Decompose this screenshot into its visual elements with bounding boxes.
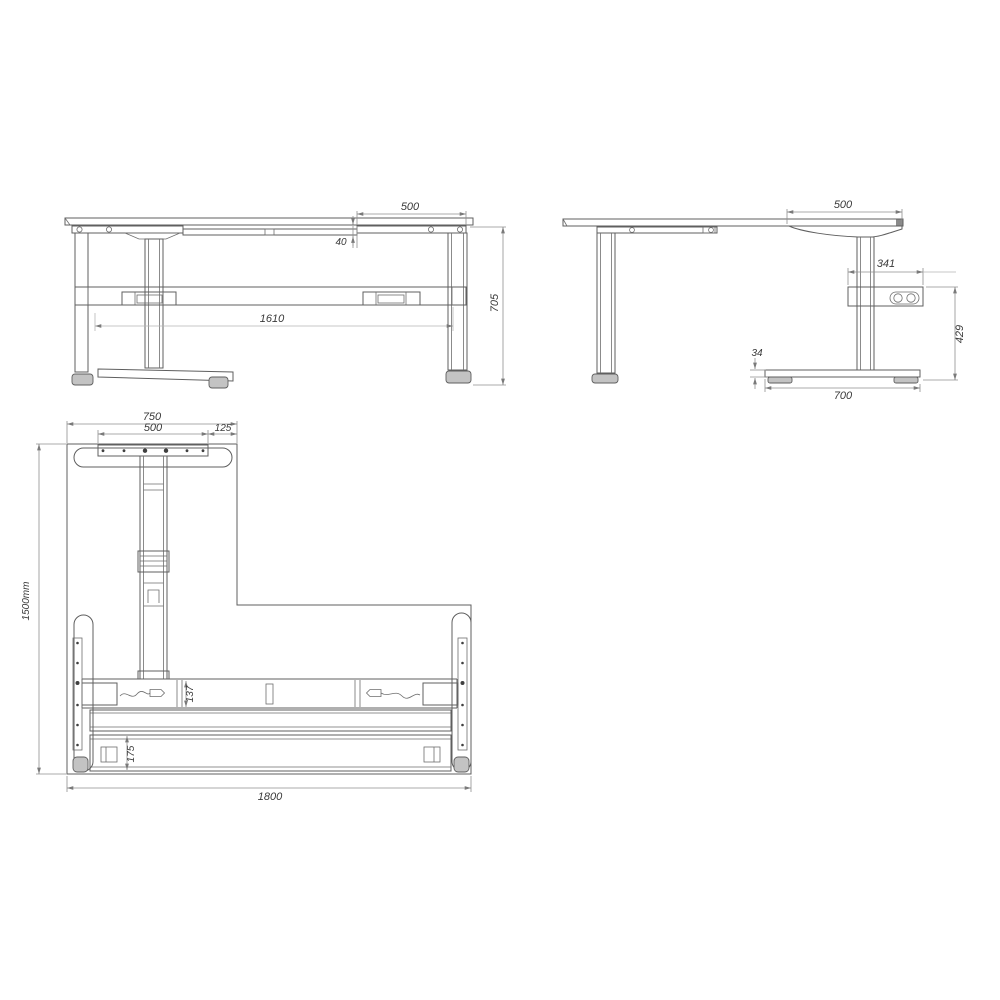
dim-front-rail-offset: 40 xyxy=(335,237,347,248)
dim-side-top-width: 500 xyxy=(834,199,853,211)
front-feet xyxy=(72,369,471,388)
side-view: 500 341 429 34 700 xyxy=(563,199,966,402)
plan-view: 750 500 125 1500mm 137 175 1800 xyxy=(21,411,471,803)
column-foot-plate xyxy=(138,671,169,679)
motor-box-right xyxy=(423,683,458,705)
plan-dimensions: 750 500 125 1500mm 137 175 1800 xyxy=(21,411,471,803)
dim-plan-overall-width: 1800 xyxy=(258,791,283,803)
front-underframe-rails xyxy=(72,226,466,239)
front-return-leg xyxy=(145,239,163,368)
front-view: 500 40 1610 705 xyxy=(65,201,506,388)
cable-plug-left xyxy=(150,690,165,697)
desktop-outline xyxy=(67,444,471,774)
plan-main-beam xyxy=(82,679,458,708)
dim-control-box-height: 429 xyxy=(954,325,966,343)
cable-tray-left xyxy=(122,292,176,305)
dim-plan-rear-rail-width: 175 xyxy=(126,745,137,762)
top-mount-bracket xyxy=(98,445,208,456)
plan-return-column xyxy=(138,456,169,679)
foot-pad xyxy=(894,377,918,383)
beam-center-joint xyxy=(266,684,273,704)
side-mount-bar xyxy=(458,638,467,750)
foot-pad xyxy=(446,371,471,383)
cable-plug-right xyxy=(367,690,382,697)
leg-top-bracket xyxy=(125,233,180,239)
dim-foot-length: 700 xyxy=(834,390,853,402)
front-left-outer-leg xyxy=(75,233,88,372)
cable-tray-right xyxy=(363,292,420,305)
dim-front-leg-span: 1610 xyxy=(260,313,285,325)
foot-pad xyxy=(592,374,618,383)
front-rail-middle xyxy=(183,229,357,235)
plan-rear-rails xyxy=(90,710,451,771)
dim-plan-bracket-width: 500 xyxy=(144,422,163,434)
side-underframe xyxy=(597,226,902,237)
front-right-leg xyxy=(448,233,467,370)
rear-rail xyxy=(90,735,451,771)
screw-hole xyxy=(457,227,462,232)
dim-front-height: 705 xyxy=(489,293,501,312)
cable-left xyxy=(120,691,150,696)
control-box xyxy=(848,287,923,306)
dim-control-box-width: 341 xyxy=(877,258,895,270)
dim-plan-edge-offset: 125 xyxy=(215,423,232,434)
foot-pad xyxy=(72,374,93,385)
rail-bracket-left xyxy=(101,747,117,762)
dim-front-top-width: 500 xyxy=(401,201,420,213)
control-box-port xyxy=(890,292,919,304)
rail-clip xyxy=(265,229,274,235)
side-desktop xyxy=(563,219,903,226)
side-left-leg xyxy=(592,233,618,383)
side-right-leg xyxy=(857,237,874,370)
side-dimensions: 500 341 429 34 700 xyxy=(750,199,966,402)
foot-pad xyxy=(73,757,88,772)
dim-plan-depth: 1500mm xyxy=(21,582,32,621)
screw-hole xyxy=(106,227,111,232)
plan-right-foot xyxy=(452,613,471,772)
screw-hole xyxy=(630,228,635,233)
foot-pad xyxy=(454,757,469,772)
cad-drawing-canvas: 500 40 1610 705 xyxy=(0,0,1000,1000)
front-rail-left xyxy=(72,226,183,233)
cable-right xyxy=(381,693,420,698)
front-crossbar xyxy=(75,287,466,305)
front-legs xyxy=(75,233,467,372)
foot-pad xyxy=(209,377,228,388)
column-control-unit xyxy=(138,551,169,572)
front-rail-right xyxy=(357,226,466,233)
desktop-end-cap xyxy=(896,220,903,226)
foot-pad xyxy=(768,377,792,383)
dim-plan-beam-width: 137 xyxy=(185,685,196,702)
front-desktop xyxy=(65,218,473,225)
rail-bracket-right xyxy=(424,747,440,762)
screw-hole xyxy=(77,227,82,232)
motor-box-left xyxy=(82,683,117,705)
screw-hole xyxy=(428,227,433,232)
side-top-bracket xyxy=(789,226,902,237)
screw-hole xyxy=(709,228,714,233)
dim-foot-height: 34 xyxy=(751,348,763,359)
side-foot xyxy=(765,370,920,383)
column-cable-clip xyxy=(148,590,159,603)
